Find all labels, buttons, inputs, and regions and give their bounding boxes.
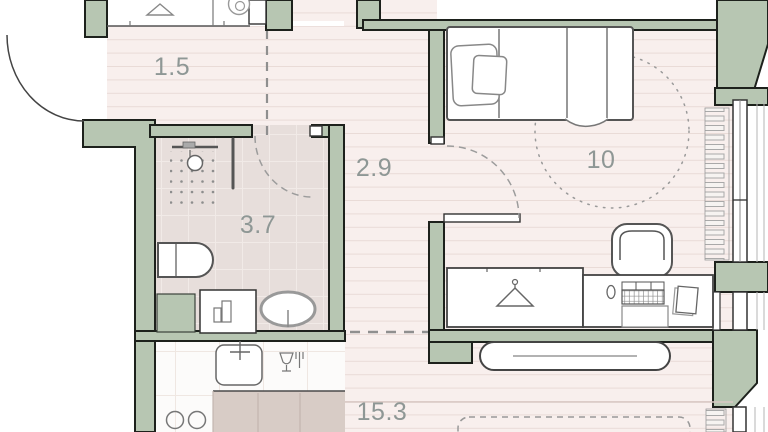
keyboard-wide-key (636, 282, 651, 290)
radiator-icon (705, 108, 729, 260)
room-label-bedroom: 10 (587, 146, 616, 174)
wall-corridor-upper (429, 30, 444, 143)
shower-head-icon (188, 156, 203, 171)
wall-step-block (429, 342, 472, 363)
book-icon (676, 286, 698, 314)
wardrobe (447, 268, 583, 327)
room-label-hallway: 1.5 (154, 53, 190, 81)
bedroom-door-leaf (444, 214, 520, 222)
keyboard-icon (622, 290, 664, 304)
room-label-bathroom: 3.7 (240, 211, 276, 239)
wall-bedroom-bottom (429, 330, 717, 342)
worktop (213, 391, 345, 432)
toilet-icon (158, 243, 213, 277)
room-label-living: 15.3 (357, 398, 408, 426)
toiletries-icon (222, 301, 231, 322)
wall-entry-top (85, 0, 107, 37)
mouse-icon (607, 286, 615, 299)
floor-plan: 1.5 3.7 2.9 10 15.3 (0, 0, 768, 432)
floor-plan-svg: 1.5 3.7 2.9 10 15.3 (0, 0, 768, 432)
room-label-corridor: 2.9 (356, 154, 392, 182)
wall-bath-right (329, 125, 344, 335)
wall-right-mid-pier (715, 262, 768, 292)
wall-bath-top-left (150, 125, 252, 137)
desk-mat (622, 306, 668, 327)
duct-shaft (157, 294, 195, 332)
pillow-icon (472, 55, 507, 95)
bedroom-door-jamb (431, 137, 444, 144)
toiletries-icon (214, 308, 221, 322)
window-jamb (713, 292, 720, 330)
wall-closet-door (266, 0, 292, 30)
bathroom-door-jamb (310, 126, 322, 136)
radiator-icon (706, 409, 726, 432)
kitchen-sink (216, 345, 262, 385)
window-living (733, 407, 746, 432)
wall-corridor-lower (429, 222, 444, 332)
shower-mount (183, 142, 195, 148)
window-desk (733, 292, 747, 330)
desk-chair (612, 224, 672, 277)
floor-top-opening (292, 0, 344, 21)
closet-door-leaf (249, 0, 266, 24)
